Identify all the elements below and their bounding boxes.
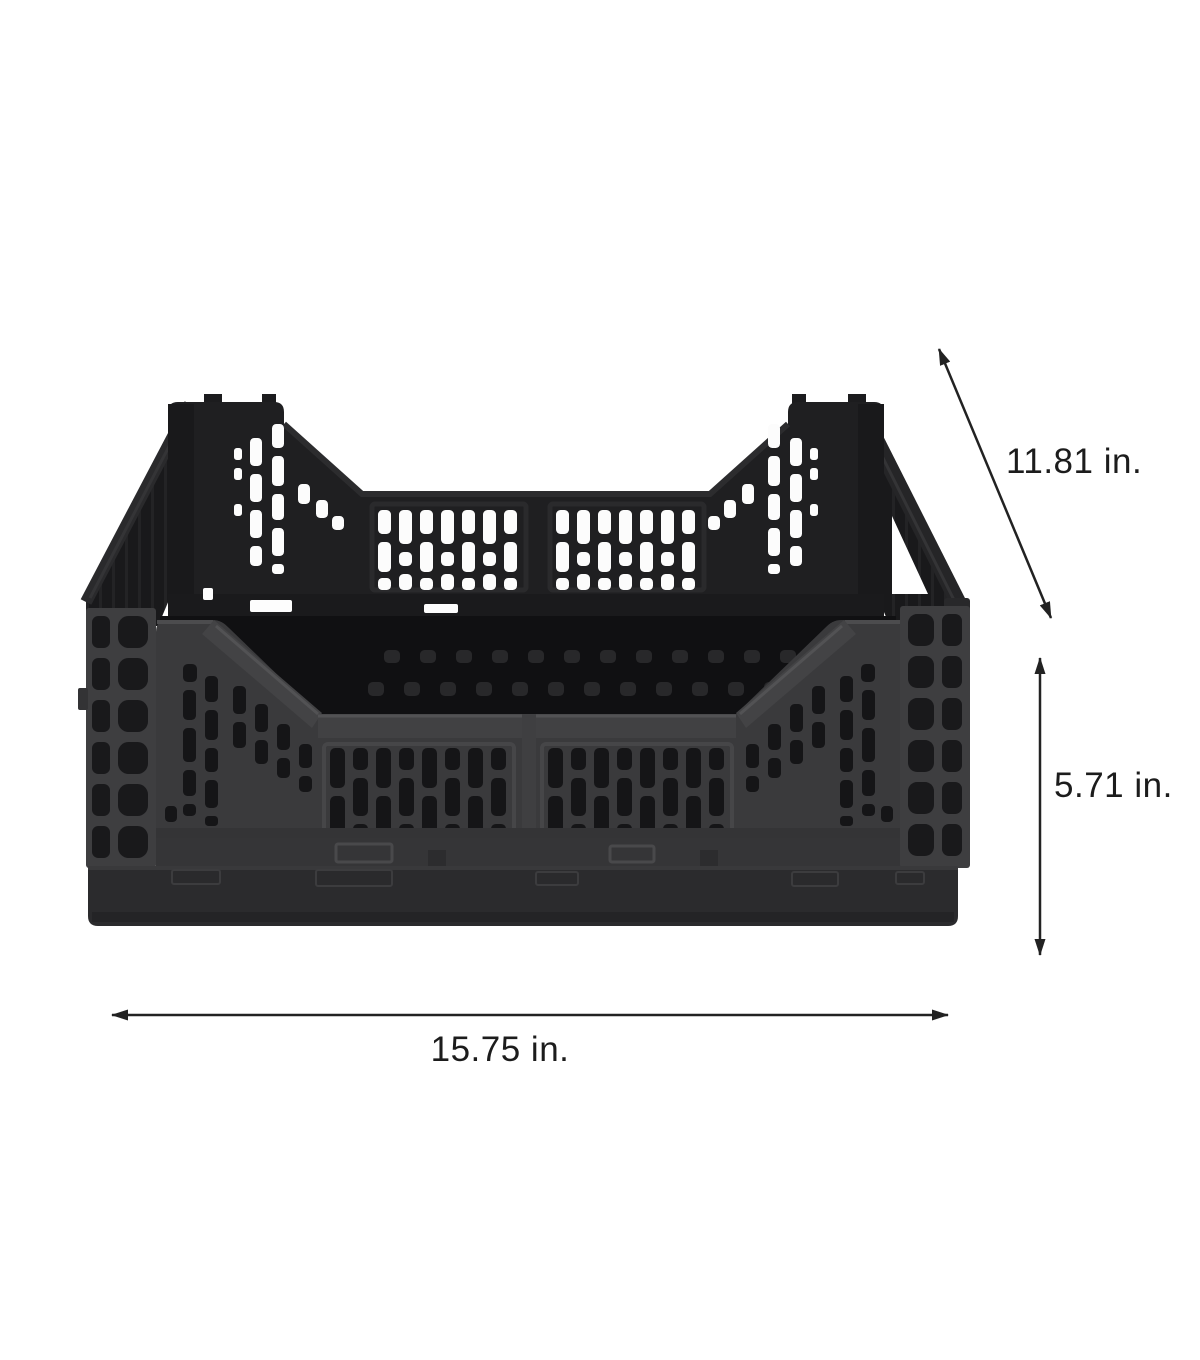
folding-crate-figure (0, 0, 1200, 1360)
crate-left-corner-post (78, 608, 156, 868)
crate-back-panel (168, 394, 884, 632)
depth-dimension-label: 11.81 in. (1006, 442, 1142, 482)
depth-dimension-arrow (939, 349, 1051, 618)
height-dimension-label: 5.71 in. (1054, 766, 1173, 806)
product-dimension-diagram: 11.81 in. 5.71 in. 15.75 in. (0, 0, 1200, 1360)
crate-base (88, 866, 958, 926)
crate-right-corner-post (900, 606, 970, 868)
crate-illustration (78, 394, 970, 926)
width-dimension-label: 15.75 in. (400, 1030, 600, 1070)
